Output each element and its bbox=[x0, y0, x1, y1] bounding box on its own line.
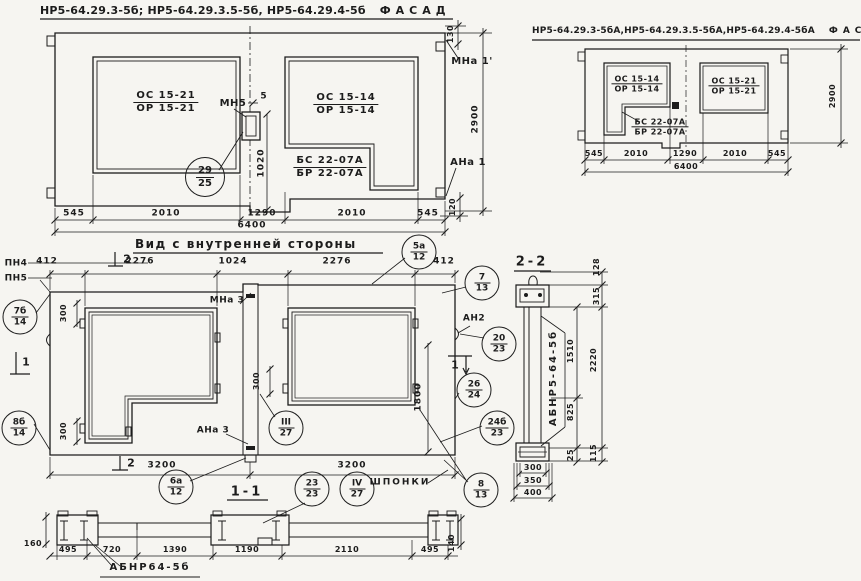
facade-b-window-left-mark: ОС 15-14 ОР 15-14 bbox=[611, 74, 662, 93]
label-mna3: МНа 3 bbox=[210, 297, 244, 306]
dim-120: 120 bbox=[449, 198, 457, 216]
dim-412-r: 412 bbox=[433, 258, 455, 267]
anchor-label-mn5: МН5 bbox=[220, 99, 247, 109]
dim-300-3: 300 bbox=[253, 372, 261, 390]
callout-23-23: 23 23 bbox=[295, 472, 330, 507]
callout-26-24: 26 24 bbox=[457, 373, 492, 408]
dim-1290-b: 1290 bbox=[673, 150, 697, 158]
facade-a-window-left-mark: ОС 15-21 ОР 15-21 bbox=[133, 90, 198, 114]
dim-2010-a2: 2010 bbox=[337, 210, 366, 219]
facade-a-outline bbox=[40, 19, 453, 218]
dim-1190-s11: 1190 bbox=[235, 546, 259, 554]
facade-b-window-right-mark: ОС 15-21 ОР 15-21 bbox=[708, 76, 759, 95]
dim-545-b2: 545 bbox=[768, 150, 786, 158]
dim-6400-a: 6400 bbox=[234, 222, 269, 231]
dim-1510: 1510 bbox=[567, 339, 575, 363]
dim-2110-s11: 2110 bbox=[335, 546, 359, 554]
facade-b-view-word: ФАСАД bbox=[829, 26, 861, 36]
label-pn5: ПН5 bbox=[5, 275, 28, 284]
facade-a-sill-block-mark: БС 22-07А БР 22-07А bbox=[293, 155, 366, 179]
dim-6400-b: 6400 bbox=[671, 163, 701, 171]
dim-130: 130 bbox=[447, 25, 455, 43]
label-shponki: ШПОНКИ bbox=[370, 479, 431, 488]
facade-b-designations: НР5-64.29.3-5бА,НР5-64.29.3.5-5бА,НР5-64… bbox=[532, 26, 815, 36]
callout-20-23: 20 23 bbox=[482, 327, 517, 362]
dim-495-s11-l: 495 bbox=[59, 546, 77, 554]
dim-545-a1: 545 bbox=[63, 210, 85, 219]
callout-24b-23: 24б 23 bbox=[480, 411, 515, 446]
dim-300-s22: 300 bbox=[522, 464, 544, 472]
section-mark-1-right: 1 bbox=[451, 360, 459, 371]
callout-5a-12: 5а 12 bbox=[402, 235, 437, 270]
callout-iv-27: IV 27 bbox=[340, 472, 375, 507]
dim-25: 25 bbox=[567, 449, 575, 461]
dim-545-a2: 545 bbox=[417, 210, 439, 219]
dim-2900-facade-a: 2900 bbox=[472, 104, 481, 133]
dim-315: 315 bbox=[593, 287, 601, 305]
section-1-1-title: 1-1 bbox=[231, 486, 264, 499]
dim-300-2: 300 bbox=[60, 422, 68, 440]
anchor-label-mna1: МНа 1' bbox=[451, 57, 493, 67]
label-pn4: ПН4 bbox=[5, 260, 28, 269]
dim-1024: 1024 bbox=[218, 258, 247, 267]
inner-view-title: Вид с внутренней стороны bbox=[135, 238, 357, 250]
facade-a-dimension-lines bbox=[55, 20, 492, 236]
dim-545-b1: 545 bbox=[585, 150, 603, 158]
dim-115: 115 bbox=[590, 444, 598, 462]
dim-1390-s11: 1390 bbox=[163, 546, 187, 554]
label-ana3: АНа 3 bbox=[197, 427, 229, 436]
dim-350-s22: 350 bbox=[522, 477, 544, 485]
dim-495-s11-r: 495 bbox=[421, 546, 439, 554]
facade-a-designations: НР5-64.29.3-5б; НР5-64.29.3.5-5б, НР5-64… bbox=[40, 4, 366, 17]
dim-400-s22: 400 bbox=[522, 489, 544, 497]
section-2-2-panel-mark: АБНР5-64-5б bbox=[549, 330, 559, 426]
callout-8-13: 8 13 bbox=[464, 473, 499, 508]
dim-2276-r: 2276 bbox=[322, 258, 351, 267]
inner-view-outline bbox=[47, 253, 459, 462]
facade-b-outline bbox=[532, 40, 860, 150]
dim-140: 140 bbox=[448, 534, 456, 552]
dim-2010-b1: 2010 bbox=[624, 150, 648, 158]
callout-7b-14: 7б 14 bbox=[3, 300, 38, 335]
dim-3200-r: 3200 bbox=[337, 462, 366, 471]
section-mark-1-left: 1 bbox=[22, 357, 30, 368]
section-2-2-title: 2-2 bbox=[516, 256, 549, 269]
callout-8b-14: 8б 14 bbox=[2, 411, 37, 446]
dim-2010-a1: 2010 bbox=[151, 210, 180, 219]
dim-2900-facade-b: 2900 bbox=[829, 84, 837, 108]
anchor-label-ana1: АНа 1 bbox=[450, 158, 486, 168]
callout-6a-12: 6а 12 bbox=[159, 470, 194, 505]
callout-7-13: 7 13 bbox=[465, 266, 500, 301]
dim-160: 160 bbox=[24, 540, 42, 548]
dim-2220: 2220 bbox=[590, 348, 598, 372]
section-mark-2-bottom: 2 bbox=[127, 458, 135, 469]
dim-412-l: 412 bbox=[36, 258, 58, 267]
dim-2010-b2: 2010 bbox=[723, 150, 747, 158]
facade-b-sill-block-mark: БС 22-07А БР 22-07А bbox=[631, 117, 688, 136]
facade-b-title: НР5-64.29.3-5бА,НР5-64.29.3.5-5бА,НР5-64… bbox=[532, 27, 861, 36]
dim-720-s11: 720 bbox=[103, 546, 121, 554]
dim-825: 825 bbox=[567, 403, 575, 421]
blueprint-sheet: НР5-64.29.3-5б; НР5-64.29.3.5-5б, НР5-64… bbox=[0, 0, 861, 581]
dim-300-1: 300 bbox=[60, 304, 68, 322]
facade-b-ticks bbox=[582, 46, 845, 176]
dim-1020: 1020 bbox=[258, 148, 267, 177]
section-1-1-outline bbox=[57, 511, 458, 545]
dim-1800: 1800 bbox=[415, 382, 424, 411]
facade-a-view-word: ФАСАД bbox=[380, 4, 451, 17]
facade-a-window-right-mark: ОС 15-14 ОР 15-14 bbox=[313, 92, 378, 116]
callout-iii-27: III 27 bbox=[269, 411, 304, 446]
facade-a-ticks bbox=[52, 23, 487, 236]
dim-128: 128 bbox=[593, 258, 601, 276]
section-mark-2-top: 2 bbox=[123, 254, 131, 265]
facade-a-title: НР5-64.29.3-5б; НР5-64.29.3.5-5б, НР5-64… bbox=[40, 5, 451, 16]
section-1-1-panel-mark: АБНР64-5б bbox=[109, 563, 190, 573]
callout-29-25: 29 25 bbox=[185, 157, 225, 197]
label-an2: АН2 bbox=[463, 315, 485, 324]
dim-5: 5 bbox=[260, 93, 267, 102]
dim-1290-a: 1290 bbox=[247, 210, 276, 219]
